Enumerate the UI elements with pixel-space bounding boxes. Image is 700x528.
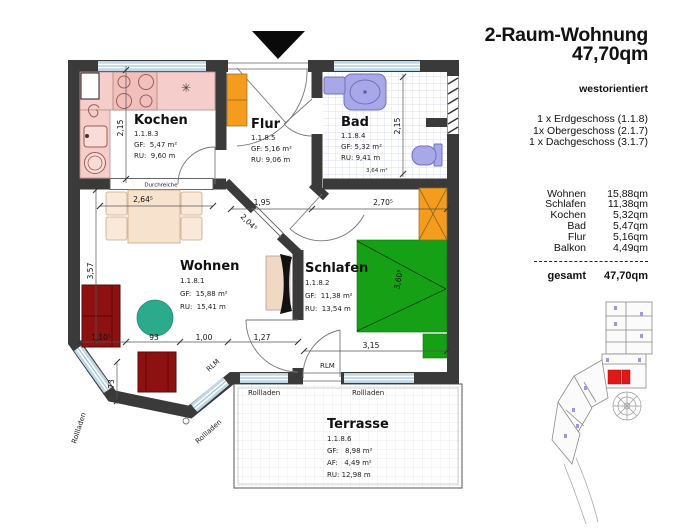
dim-73: 73 <box>107 379 116 389</box>
floor-plan: Durchreiche ✳ <box>0 0 490 528</box>
kochen-label: Kochen 1.1.8.3 GF: 5,47 m² RU: 9,60 m <box>134 113 188 160</box>
dim-100: 1,00 <box>196 333 213 342</box>
rlm-label: RLM <box>320 362 335 370</box>
orientation-label: westorientiert <box>455 83 648 95</box>
flur-title: Flur <box>251 117 281 132</box>
dim-bad-215: 2,15 <box>393 117 402 134</box>
floor-item: 1 x Dachgeschoss (3.1.7) <box>455 137 648 149</box>
site-roads <box>564 458 598 524</box>
total-value: 47,70qm <box>586 270 648 282</box>
dim-270: 2,70⁵ <box>373 198 393 207</box>
total-row: gesamt 47,70qm <box>455 270 648 282</box>
schlafen-gf: GF: 11,38 m² <box>305 292 353 300</box>
title-line2: 47,70qm <box>455 45 648 64</box>
wohnen-label: Wohnen 1.1.8.1 GF: 15,88 m² RU: 15,41 m <box>180 259 239 311</box>
rollladen-label-vertical: Rollladen <box>70 412 88 445</box>
terrasse-gf: GF: 8,98 m² <box>327 447 373 455</box>
entrance-opening <box>228 63 308 69</box>
rlm-label-diagonal: RLM <box>205 358 221 374</box>
schlafen-ru: RU: 13,54 m <box>305 305 351 313</box>
bad-gf: GF: 5,32 m² <box>341 143 382 151</box>
rollladen-label-diagonal: Rollladen <box>194 418 223 445</box>
terrasse-id: 1.1.8.6 <box>327 435 352 443</box>
dim-127: 1,27 <box>254 333 271 342</box>
kochen-gf: GF: 5,47 m² <box>134 141 177 149</box>
kochen-title: Kochen <box>134 113 188 128</box>
info-panel: 2-Raum-Wohnung 47,70qm westorientiert 1 … <box>455 26 648 282</box>
armchair <box>138 352 176 392</box>
page-title: 2-Raum-Wohnung 47,70qm <box>455 26 648 64</box>
dim-315: 3,15 <box>363 341 380 350</box>
terrasse-af: AF: 4,49 m² <box>327 459 372 467</box>
bath-sink <box>324 77 345 94</box>
area-table: Wohnen15,88qm Schlafen11,38qm Kochen5,32… <box>455 189 648 254</box>
flur-label: Flur 1.1.8.5 GF: 5,16 m² RU: 9,06 m <box>251 117 292 164</box>
floor-list: 1 x Erdgeschoss (1.1.8) 1x Obergeschoss … <box>455 114 648 149</box>
site-plan <box>548 298 696 526</box>
kochen-id: 1.1.8.3 <box>134 130 159 138</box>
dim-264: 2,64⁵ <box>133 195 153 204</box>
dim-204: 2,04⁵ <box>239 212 259 232</box>
bad-id: 1.1.8.4 <box>341 132 366 140</box>
site-unit-highlight <box>608 370 630 384</box>
total-label: gesamt <box>455 270 586 282</box>
dim-93: 93 <box>149 333 159 342</box>
flur-wardrobe <box>227 74 247 126</box>
floor-item: 1 x Erdgeschoss (1.1.8) <box>455 114 648 126</box>
flur-gf: GF: 5,16 m² <box>251 145 292 153</box>
schlafen-wardrobe <box>419 188 447 240</box>
bad-ru: RU: 9,41 m <box>341 154 380 162</box>
kochen-ru: RU: 9,60 m <box>134 152 176 160</box>
dining-set <box>106 190 202 243</box>
bad-wall-step <box>426 118 447 127</box>
toilet-bowl <box>412 146 436 165</box>
terrasse-title: Terrasse <box>327 417 389 432</box>
flur-id: 1.1.8.5 <box>251 134 276 142</box>
schlafen-title: Schlafen <box>305 261 368 276</box>
rollladen-label-1: Rollladen <box>248 389 280 397</box>
rollladen-label-2: Rollladen <box>352 389 384 397</box>
wohnen-id: 1.1.8.1 <box>180 277 205 285</box>
wohnen-ru: RU: 15,41 m <box>180 303 226 311</box>
entrance-arrow-icon <box>252 31 305 59</box>
dim-110: 1,10⁵ <box>91 333 111 342</box>
wohnen-gf: GF: 15,88 m² <box>180 290 228 298</box>
nightstand <box>423 334 447 358</box>
bed <box>357 240 447 332</box>
terrasse-ru: RU: 12,98 m <box>327 471 371 479</box>
dim-kochen-215: 2,15 <box>116 119 125 136</box>
dim-357: 3,57 <box>86 262 95 279</box>
bad-title: Bad <box>341 115 369 130</box>
fridge <box>81 73 99 99</box>
cooktop-star-icon: ✳ <box>181 81 191 95</box>
divider <box>534 261 648 262</box>
bad-niche-area: 3,64 m² <box>366 167 388 174</box>
flur-ru: RU: 9,06 m <box>251 156 290 164</box>
area-row: Balkon4,49qm <box>455 243 648 254</box>
schlafen-id: 1.1.8.2 <box>305 279 330 287</box>
round-table <box>137 300 173 336</box>
wohnen-title: Wohnen <box>180 259 239 274</box>
floorplan-page: { "header": { "title1": "2-Raum-Wohnung"… <box>0 0 700 528</box>
dim-195: 1,95 <box>254 198 271 207</box>
site-stairwell <box>613 392 641 420</box>
durchreiche-label: Durchreiche <box>144 183 178 189</box>
